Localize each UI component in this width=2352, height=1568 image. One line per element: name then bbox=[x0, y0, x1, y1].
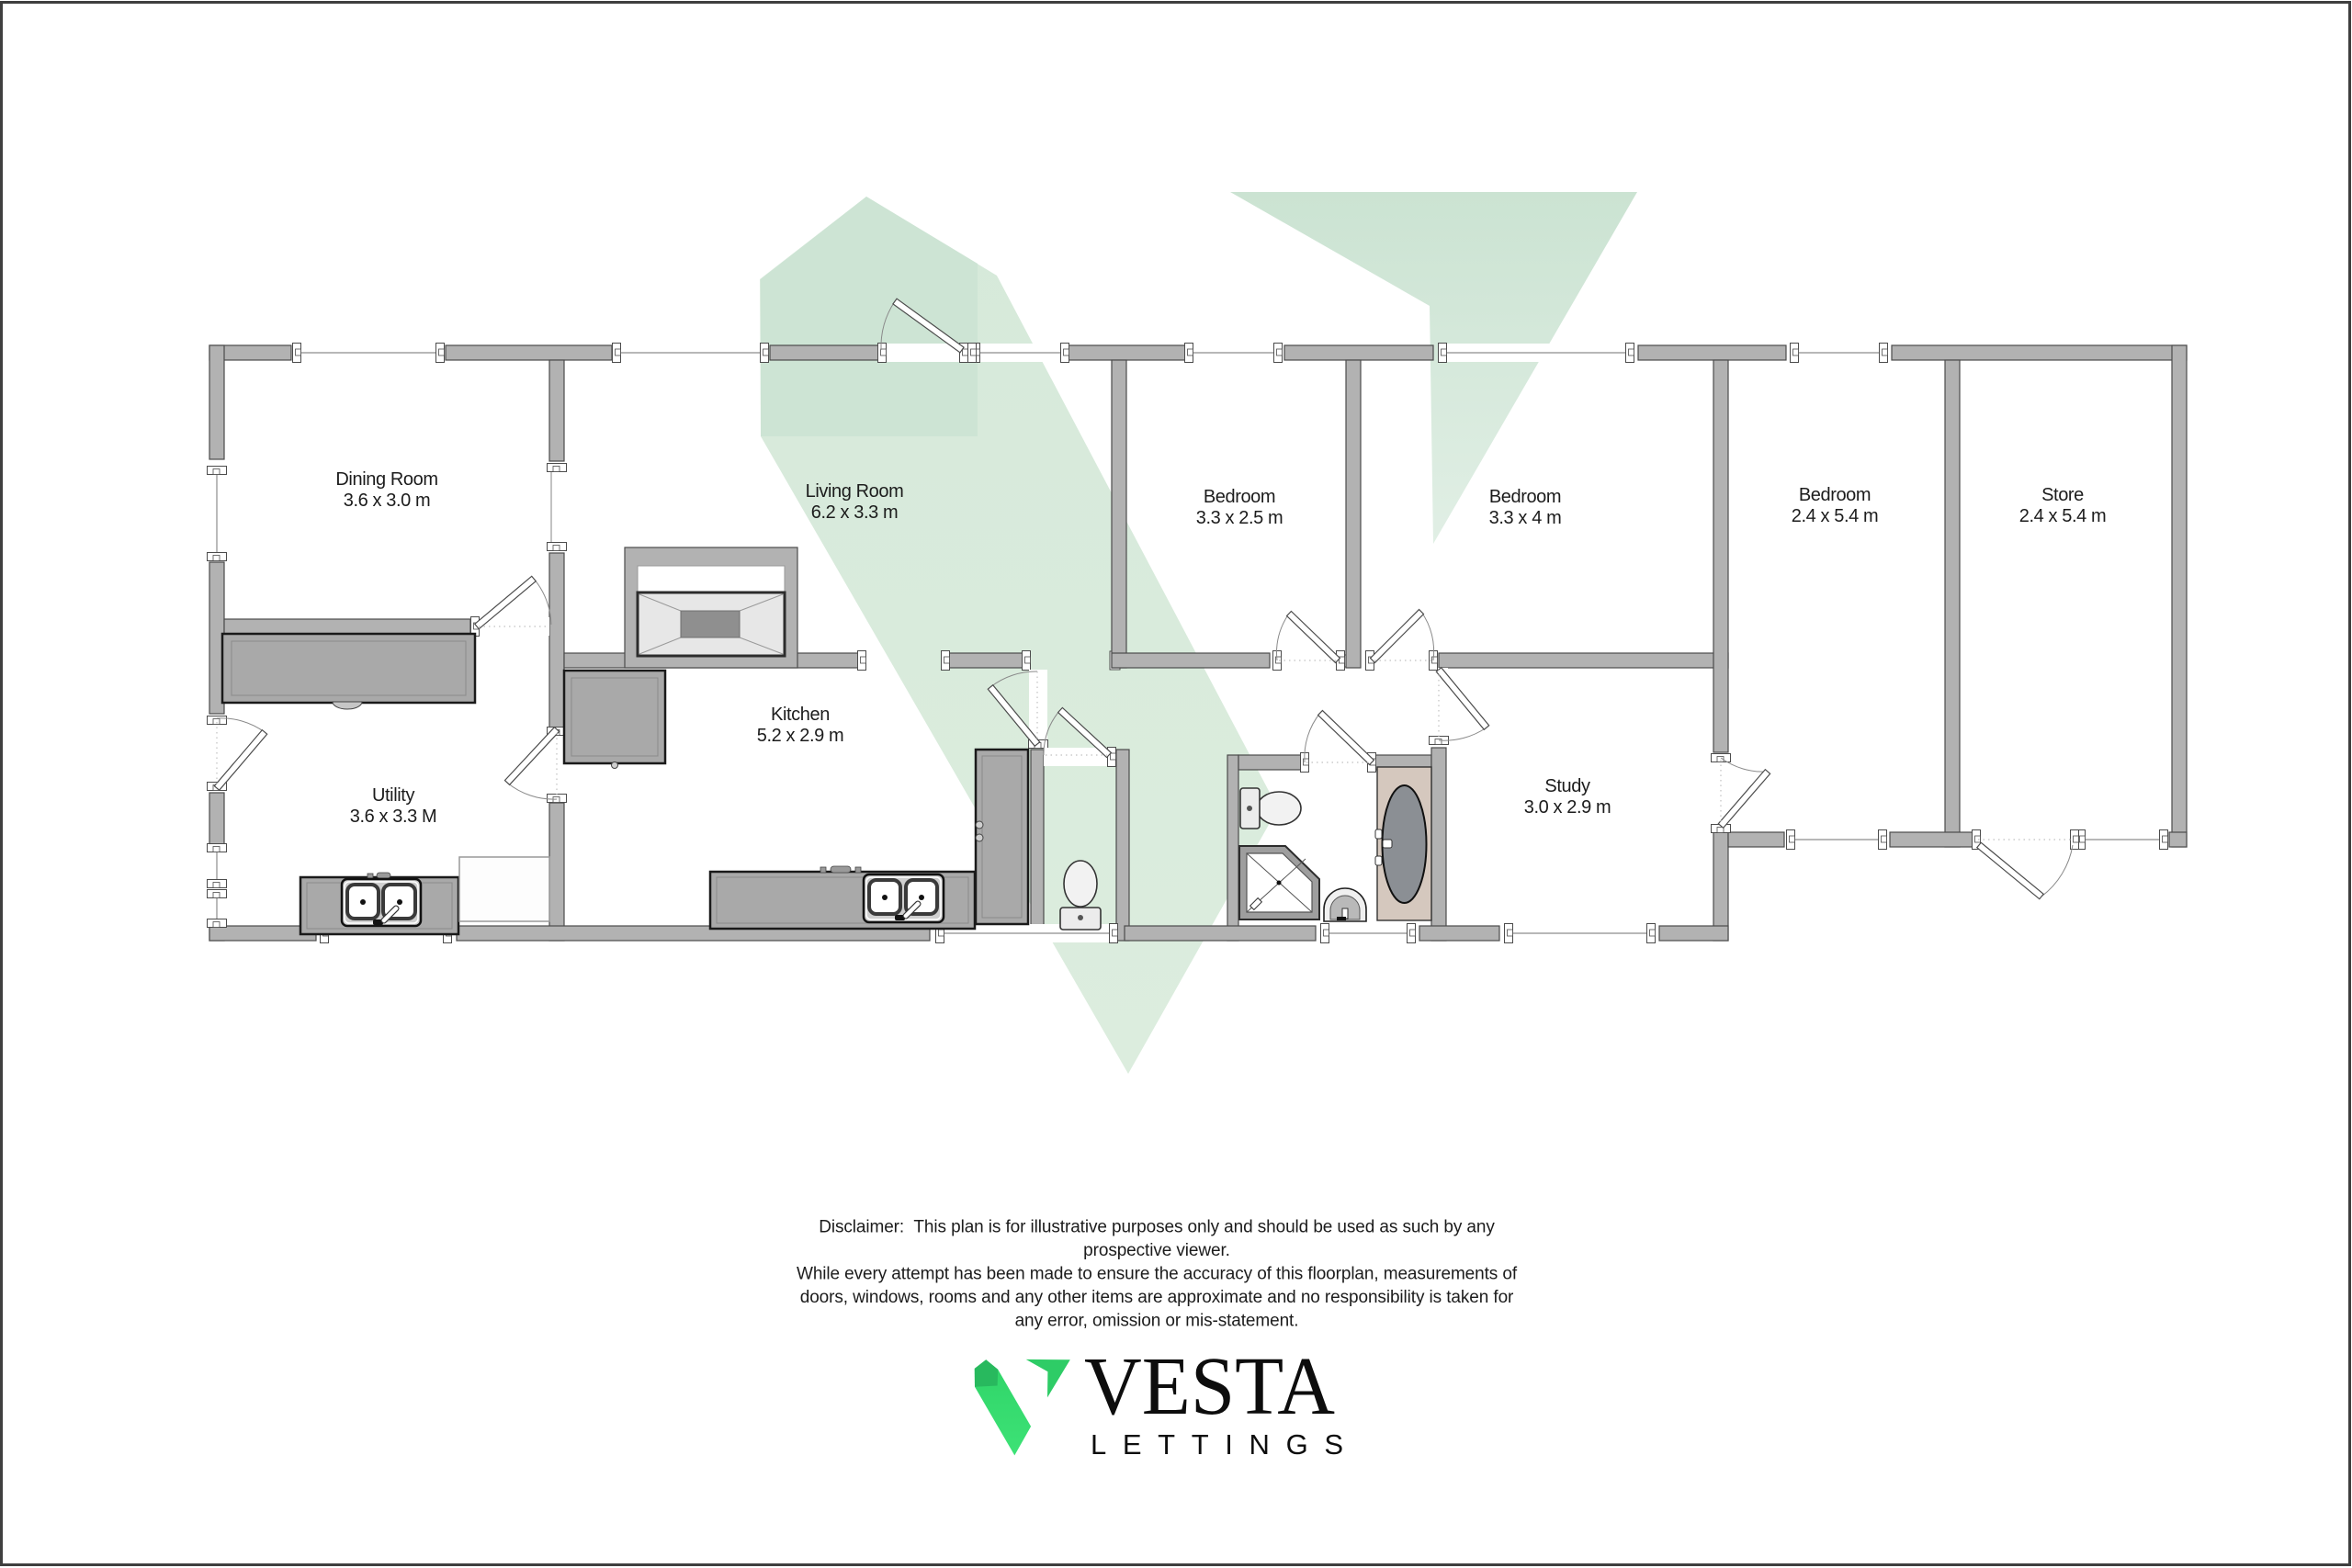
svg-text:Dining Room: Dining Room bbox=[335, 469, 437, 490]
svg-text:Kitchen: Kitchen bbox=[771, 705, 830, 725]
svg-text:VESTA: VESTA bbox=[1084, 1341, 1335, 1432]
svg-text:Bedroom: Bedroom bbox=[1204, 487, 1275, 507]
svg-text:Utility: Utility bbox=[372, 785, 414, 806]
svg-text:2.4 x 5.4 m: 2.4 x 5.4 m bbox=[2019, 506, 2107, 526]
svg-text:Disclaimer: This plan is for: Disclaimer: This plan is for illustrativ… bbox=[819, 1218, 1495, 1237]
svg-text:3.3 x 2.5 m: 3.3 x 2.5 m bbox=[1196, 508, 1283, 528]
svg-text:any error, omission or mis-sta: any error, omission or mis-statement. bbox=[1015, 1312, 1299, 1331]
svg-text:5.2 x 2.9 m: 5.2 x 2.9 m bbox=[757, 726, 844, 746]
svg-text:Study: Study bbox=[1544, 776, 1590, 796]
svg-text:3.3 x 4 m: 3.3 x 4 m bbox=[1489, 508, 1562, 528]
svg-text:Store: Store bbox=[2041, 485, 2084, 505]
svg-text:doors, windows, rooms and any: doors, windows, rooms and any other item… bbox=[800, 1288, 1514, 1307]
svg-text:3.6 x 3.0 m: 3.6 x 3.0 m bbox=[344, 491, 431, 511]
svg-text:6.2 x 3.3 m: 6.2 x 3.3 m bbox=[811, 502, 899, 523]
svg-text:While every attempt has been m: While every attempt has been made to ens… bbox=[797, 1265, 1518, 1284]
svg-text:Bedroom: Bedroom bbox=[1489, 487, 1561, 507]
svg-text:prospective viewer.: prospective viewer. bbox=[1083, 1241, 1230, 1260]
svg-text:Bedroom: Bedroom bbox=[1799, 485, 1871, 505]
svg-text:Living Room: Living Room bbox=[806, 481, 904, 502]
svg-text:3.6 x 3.3 M: 3.6 x 3.3 M bbox=[350, 807, 437, 827]
svg-text:3.0 x 2.9 m: 3.0 x 2.9 m bbox=[1524, 797, 1611, 818]
svg-text:2.4 x 5.4 m: 2.4 x 5.4 m bbox=[1792, 506, 1879, 526]
